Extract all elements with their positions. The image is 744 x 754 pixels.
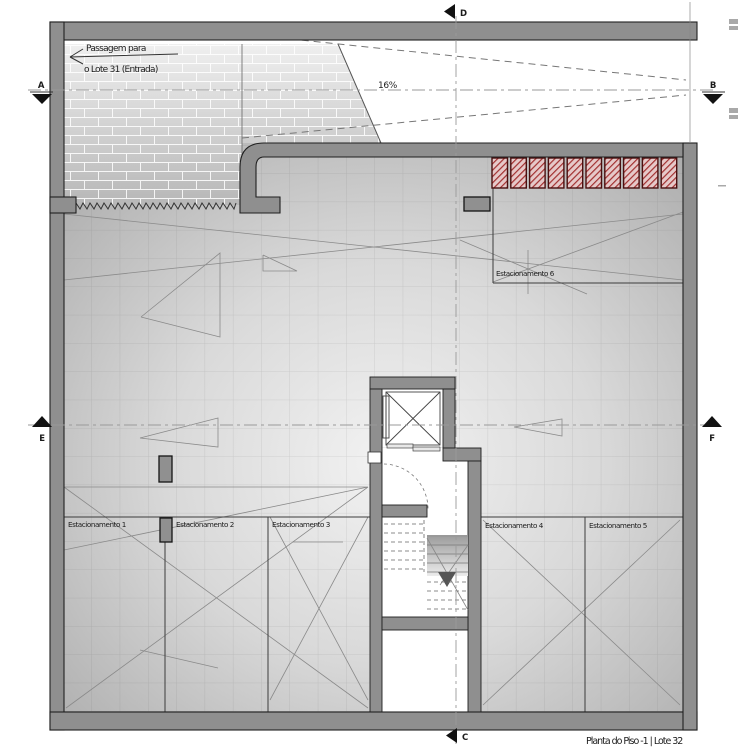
section-arrow-up-icon	[32, 416, 52, 427]
section-arrow-down-icon	[703, 94, 723, 104]
section-arrow-left-icon	[444, 4, 455, 19]
storage-box	[642, 158, 658, 188]
elevator-wall-right	[443, 389, 455, 448]
section-marker-e: E	[32, 416, 52, 444]
parking-label-3: Estacionamento 3	[272, 520, 330, 529]
section-marker-d: D	[444, 4, 467, 19]
passage-wall-stub	[50, 197, 76, 213]
storage-box	[492, 158, 508, 188]
stair-wall-top	[382, 505, 427, 517]
svg-text:D: D	[460, 9, 467, 19]
passage-label-line2: o Lote 31 (Entrada)	[84, 65, 158, 75]
svg-text:F: F	[709, 434, 715, 444]
section-marker-b: B	[702, 81, 725, 104]
outer-wall-right	[683, 143, 697, 730]
passage-label-line1: Passagem para	[86, 44, 146, 54]
column	[160, 518, 172, 542]
section-marker-f: F	[702, 416, 722, 444]
stair-wall-bottom	[382, 617, 468, 630]
storage-box	[661, 158, 677, 188]
floor-plan-drawing: 16% Estacionamento 1 Estacionamento 2 Es…	[0, 0, 744, 754]
elevator-wall-top	[370, 377, 455, 389]
core-wall-jog	[443, 448, 481, 461]
svg-text:C: C	[462, 733, 468, 743]
parking-label-6: Estacionamento 6	[496, 269, 555, 278]
storage-box	[548, 158, 564, 188]
wall-niche	[368, 452, 381, 463]
parking-label-4: Estacionamento 4	[485, 521, 544, 530]
column	[159, 456, 172, 482]
core-wall-left	[370, 389, 382, 712]
storage-box	[586, 158, 602, 188]
storage-box	[567, 158, 583, 188]
storage-box	[530, 158, 546, 188]
core-wall-right	[468, 461, 481, 712]
section-arrow-down-icon	[32, 94, 52, 104]
plan-title: Planta do Piso -1 | Lote 32	[586, 736, 683, 747]
parking-label-2: Estacionamento 2	[176, 520, 234, 529]
parking-label-5: Estacionamento 5	[589, 521, 647, 530]
svg-text:B: B	[710, 81, 716, 91]
outer-wall-bottom	[50, 712, 697, 730]
svg-text:A: A	[38, 81, 45, 91]
outer-wall-top	[50, 22, 697, 40]
storage-box	[624, 158, 640, 188]
vestibule	[382, 630, 468, 712]
floor-plan-sheet: 16% Estacionamento 1 Estacionamento 2 Es…	[0, 0, 744, 754]
parking-label-1: Estacionamento 1	[68, 520, 126, 529]
storage-box	[605, 158, 621, 188]
section-arrow-up-icon	[702, 416, 722, 427]
ramp-slope-label: 16%	[378, 81, 398, 91]
outer-wall-left	[50, 22, 64, 730]
storage-box	[511, 158, 527, 188]
svg-text:E: E	[39, 434, 45, 444]
edge-marks	[718, 19, 738, 187]
column	[464, 197, 490, 211]
